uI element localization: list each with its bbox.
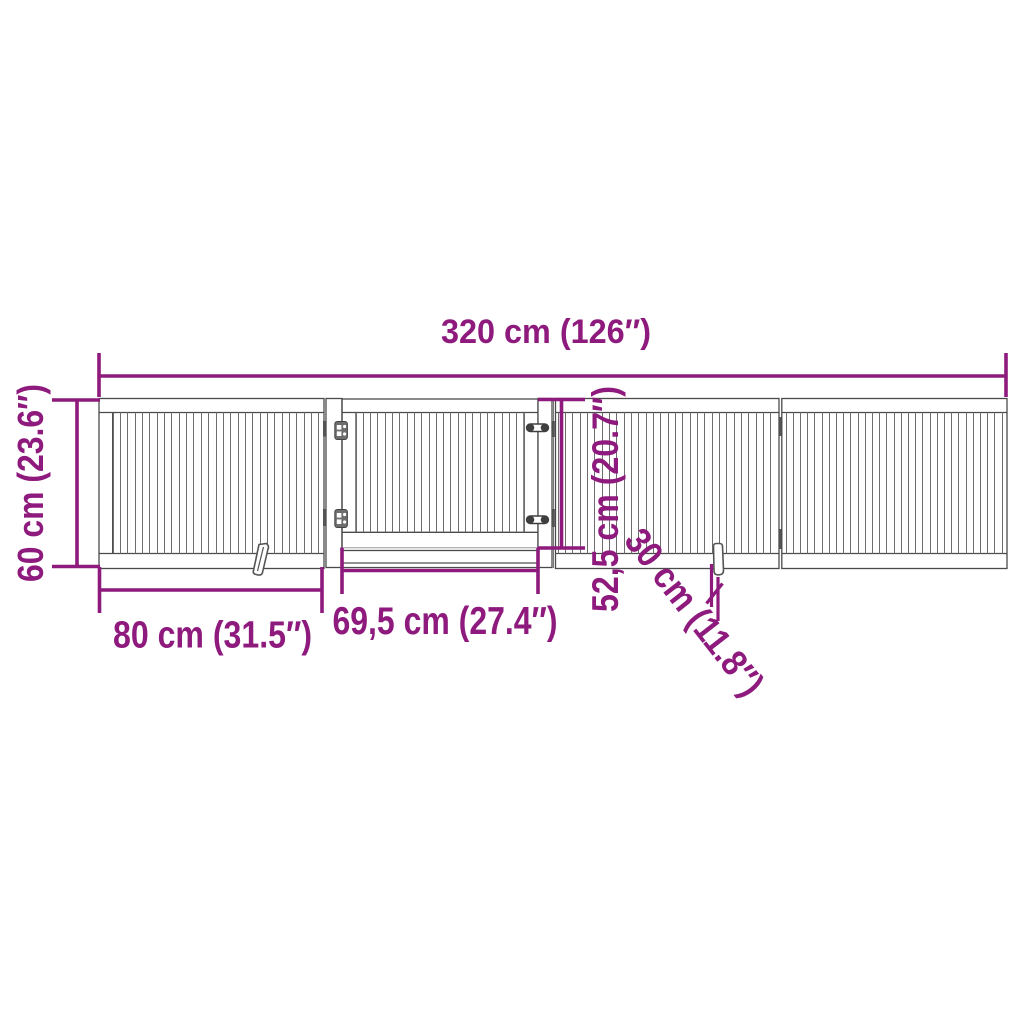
svg-text:52,5 cm (20.7″): 52,5 cm (20.7″) — [585, 386, 626, 612]
svg-text:69,5 cm (27.4″): 69,5 cm (27.4″) — [333, 600, 558, 643]
svg-text:320 cm (126″): 320 cm (126″) — [441, 313, 651, 351]
svg-text:60 cm (23.6″): 60 cm (23.6″) — [10, 384, 51, 582]
svg-text:80 cm (31.5″): 80 cm (31.5″) — [113, 615, 312, 657]
